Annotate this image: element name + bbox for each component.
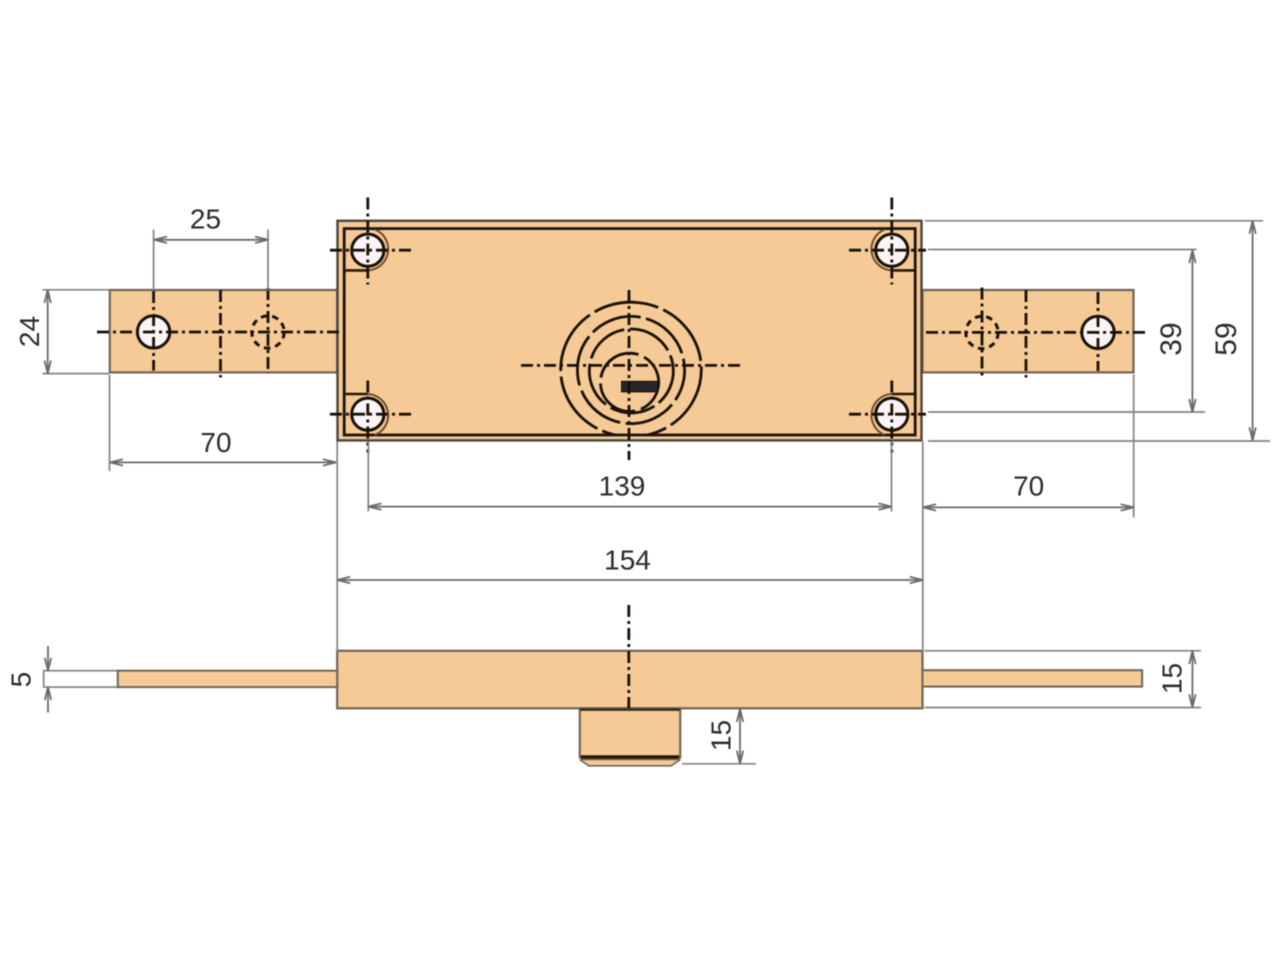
svg-text:70: 70	[1013, 471, 1044, 502]
svg-text:154: 154	[604, 545, 651, 576]
svg-text:139: 139	[599, 471, 646, 502]
svg-text:15: 15	[1157, 663, 1188, 694]
svg-text:25: 25	[190, 204, 221, 235]
svg-text:15: 15	[706, 720, 737, 751]
svg-text:39: 39	[1155, 322, 1188, 355]
svg-text:24: 24	[14, 316, 45, 347]
svg-text:5: 5	[6, 672, 37, 688]
svg-text:59: 59	[1210, 322, 1243, 355]
svg-text:70: 70	[200, 427, 231, 458]
